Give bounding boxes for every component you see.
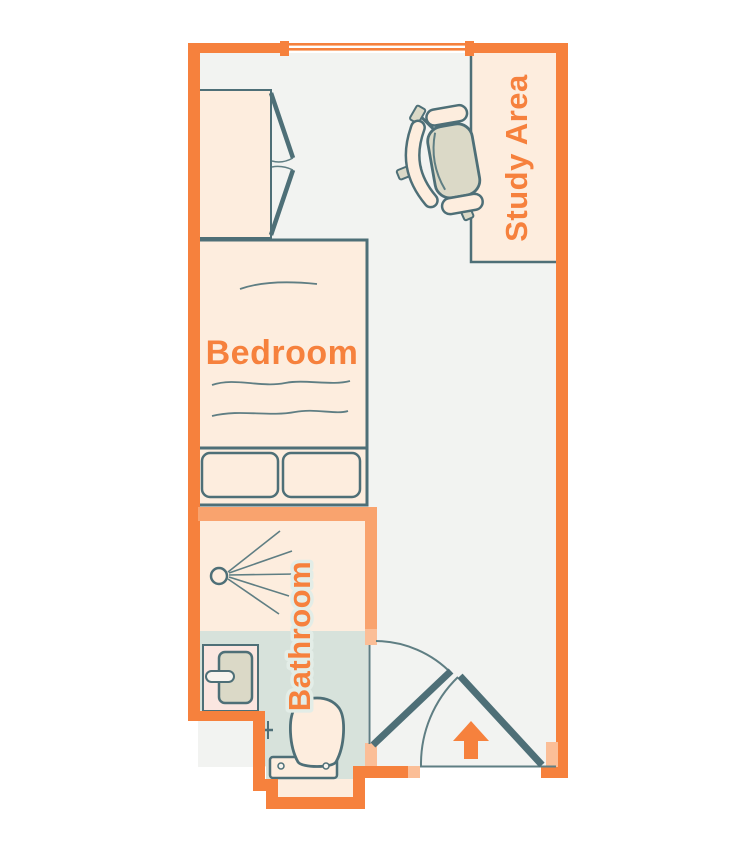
window-pane-line <box>285 43 469 46</box>
wall-top-right <box>467 43 568 53</box>
door-jamb <box>408 766 420 778</box>
wall-alcove-bottom <box>266 797 365 809</box>
door-jamb <box>365 629 377 645</box>
toilet-alcove <box>278 779 353 797</box>
wall-sink-step <box>188 711 263 721</box>
window-cap-right <box>465 41 474 56</box>
wall-top-left <box>188 43 285 53</box>
window-pane-line <box>285 48 469 51</box>
bed <box>198 240 367 505</box>
wall-bathroom-top <box>198 507 377 521</box>
wall-left <box>188 43 200 721</box>
toilet-bolt <box>323 763 329 769</box>
label-study-area: Study Area <box>499 74 534 242</box>
wardrobe-body <box>197 90 271 238</box>
pillow <box>202 453 278 497</box>
sink-faucet <box>206 671 234 682</box>
label-bathroom: Bathroom <box>282 561 317 711</box>
window-cap-left <box>280 41 289 56</box>
wall-entry-stub <box>541 766 568 778</box>
door-jamb <box>546 742 558 767</box>
pillow <box>283 453 360 497</box>
toilet-bolt <box>278 763 284 769</box>
wall-bathroom-right <box>365 507 377 631</box>
wall-right <box>556 43 568 778</box>
floorplan: Bedroom Bathroom Study Area <box>0 0 756 851</box>
label-bedroom: Bedroom <box>206 334 359 372</box>
shower-head-icon <box>211 568 227 584</box>
